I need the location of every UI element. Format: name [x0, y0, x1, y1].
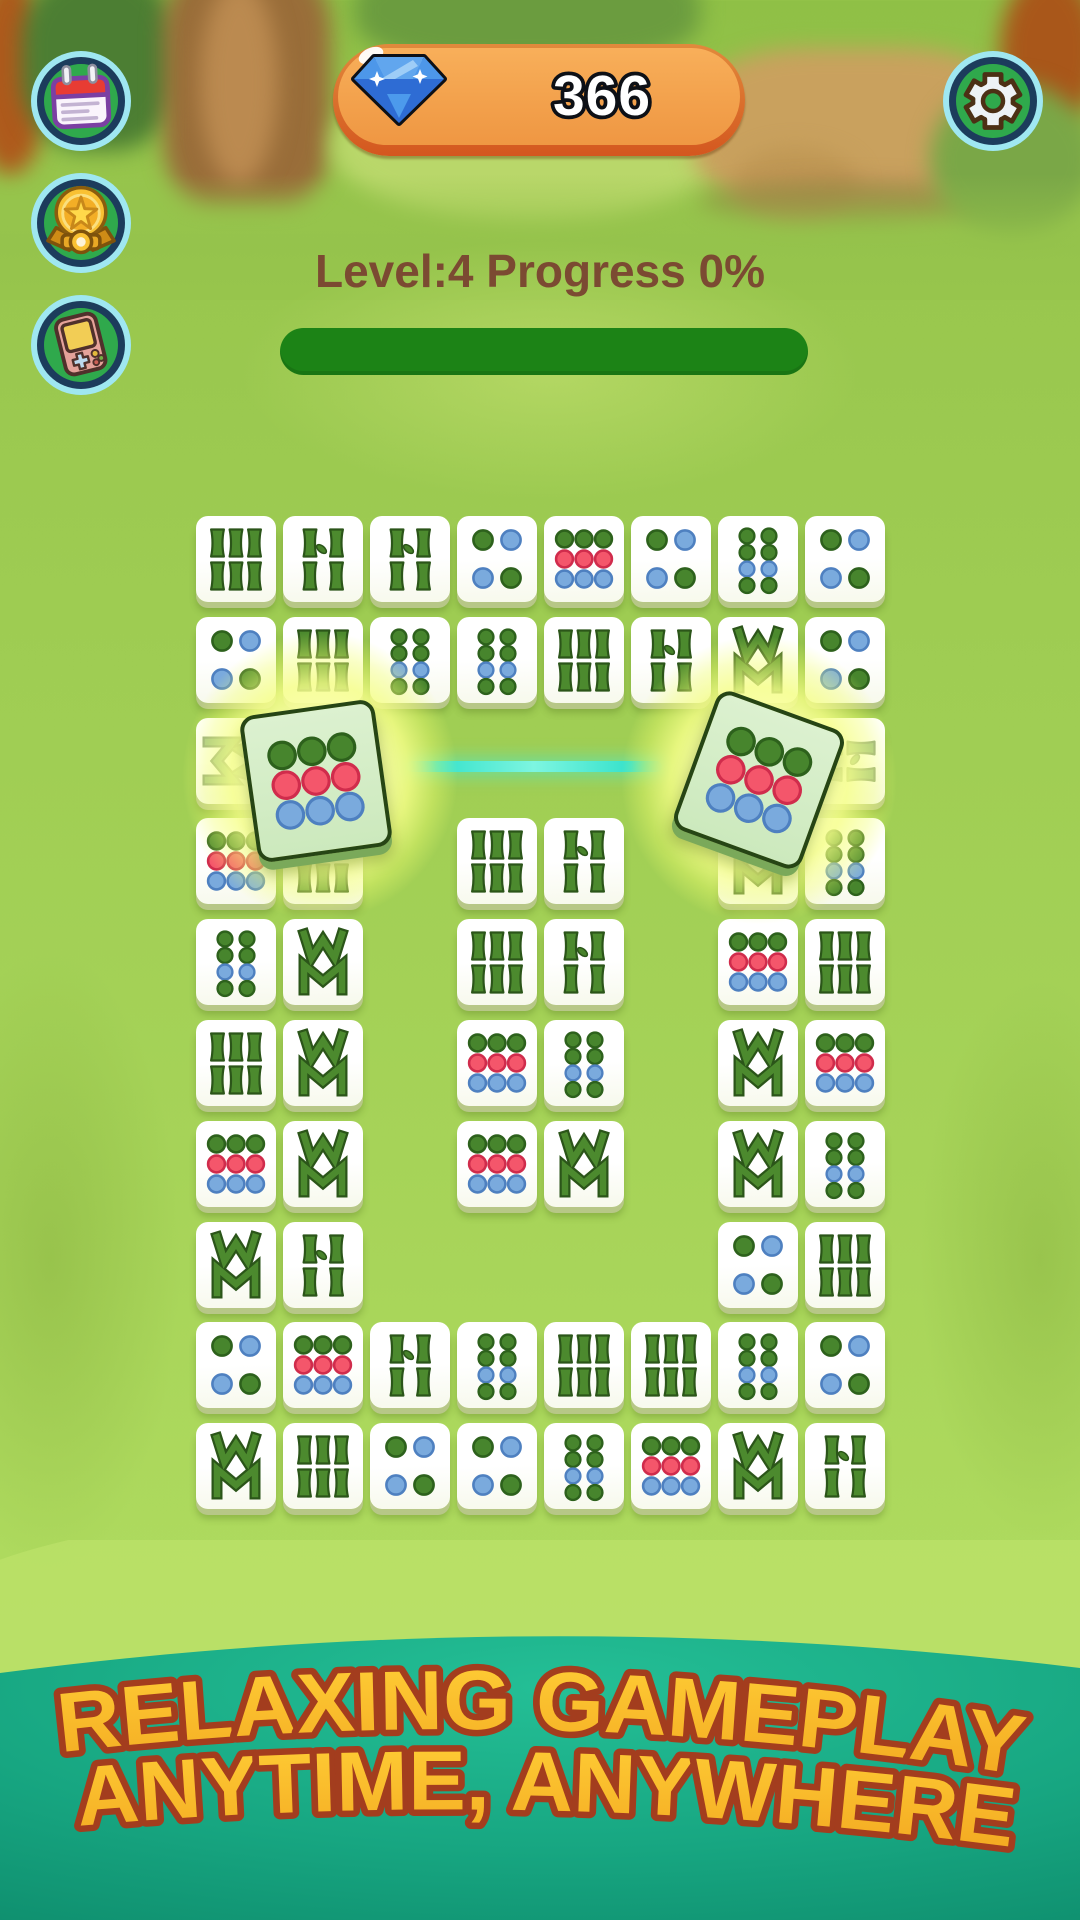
svg-text:366: 366 — [553, 64, 651, 128]
